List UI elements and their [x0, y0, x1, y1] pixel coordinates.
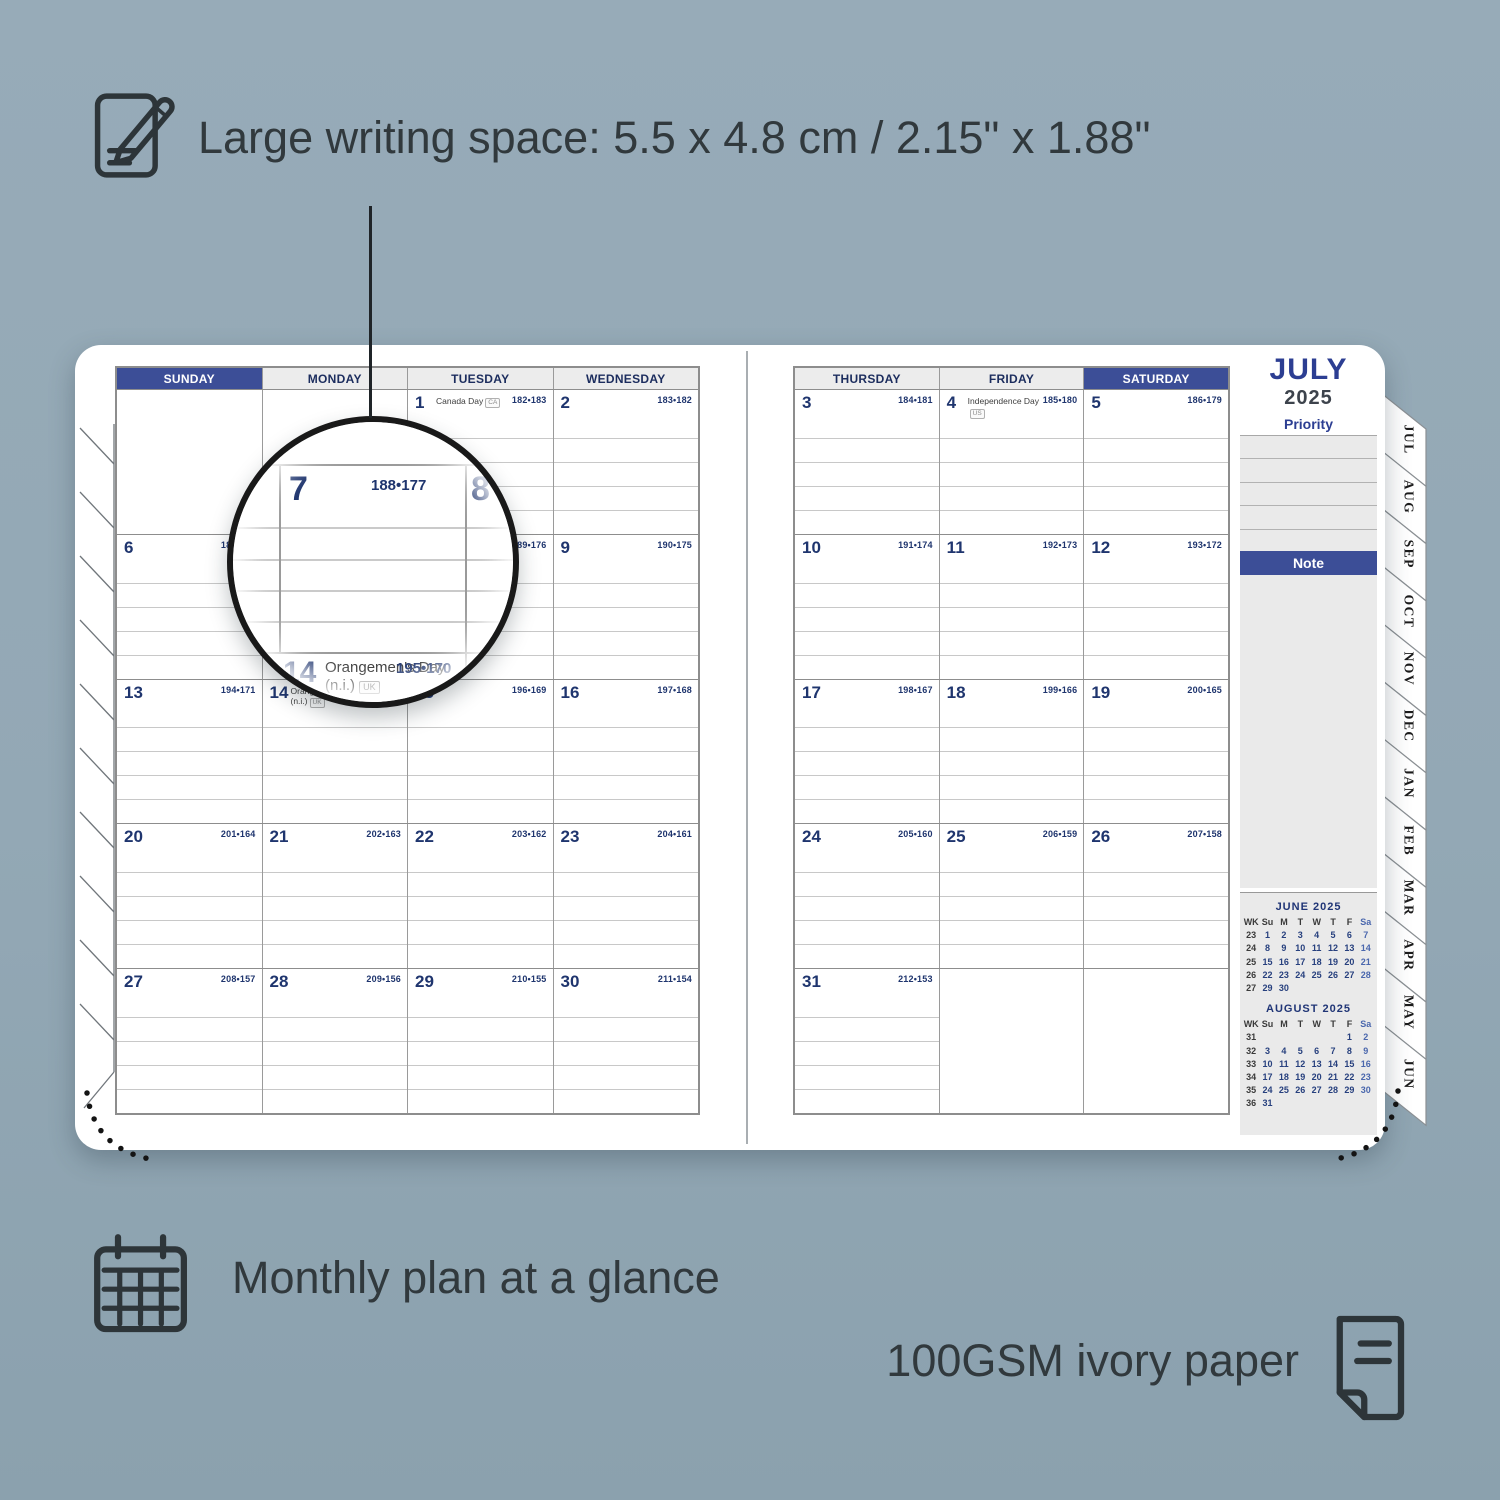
day-number: 13 [124, 683, 143, 703]
day-of-year-pair: 211•154 [658, 974, 692, 984]
mini-calendar-cell: 23 [1358, 1071, 1374, 1084]
day-of-year-pair: 201•164 [221, 829, 256, 839]
day-cell: 29210•155 [408, 969, 554, 1113]
mini-calendar-cell: 2 [1358, 1031, 1374, 1044]
mini-calendar-cell: 8 [1341, 1045, 1357, 1058]
ruled-line [940, 510, 1084, 511]
top-annotation: Large writing space: 5.5 x 4.8 cm / 2.15… [198, 112, 1150, 164]
day-cell: 31212•153 [795, 969, 940, 1113]
ruled-line [940, 486, 1084, 487]
ruled-line [1084, 896, 1228, 897]
mini-calendar-cell: 12 [1292, 1058, 1308, 1071]
month-tab-label: FEB [1402, 825, 1417, 856]
mini-calendar-cell: 24 [1292, 969, 1308, 982]
day-number: 16 [561, 683, 580, 703]
month-tab-label: JUL [1402, 425, 1417, 455]
ruled-line [1084, 510, 1228, 511]
day-number: 11 [947, 538, 965, 558]
mini-calendar-cell: 11 [1276, 1058, 1292, 1071]
ruled-line [554, 944, 699, 945]
note-area [1240, 575, 1377, 888]
ruled-line [554, 438, 699, 439]
day-cell: 27208•157 [117, 969, 263, 1113]
mini-calendar-cell: 27 [1341, 969, 1357, 982]
ruled-line [263, 1017, 408, 1018]
day-cell: 28209•156 [263, 969, 409, 1113]
day-of-year-pair: 212•153 [898, 974, 933, 984]
ruled-line [795, 1089, 939, 1090]
mini-calendar-cell [1292, 982, 1308, 995]
mini-calendar-cell: 21 [1358, 956, 1374, 969]
magnified-week-border [233, 652, 513, 654]
day-cell: 15196•169 [408, 680, 554, 824]
ruled-line [117, 631, 262, 632]
ruled-line [408, 944, 553, 945]
magnified-day-pair: 188•177 [371, 477, 426, 494]
day-cell: 18199•166 [940, 680, 1085, 824]
mini-calendar-cell: 4 [1276, 1045, 1292, 1058]
day-of-year-pair: 192•173 [1043, 540, 1078, 550]
ruled-line [263, 1065, 408, 1066]
mini-calendar-cell: 6 [1309, 1045, 1325, 1058]
ruled-line [554, 727, 699, 728]
mini-calendar-header: F [1341, 1018, 1357, 1031]
magnified-ruled-line [233, 590, 513, 592]
mini-calendar-cell: 19 [1325, 956, 1341, 969]
ruled-line [117, 799, 262, 800]
ruled-line [1084, 944, 1228, 945]
ruled-line [795, 583, 939, 584]
day-of-year-pair: 204•161 [657, 829, 692, 839]
dow-header: TUESDAY [408, 368, 554, 389]
day-cell: 12193•172 [1084, 535, 1228, 679]
ruled-line [554, 920, 699, 921]
day-number: 5 [1091, 393, 1100, 413]
day-of-year-pair: 207•158 [1187, 829, 1222, 839]
paper-sheet-icon [1322, 1312, 1410, 1424]
day-of-year-pair: 194•171 [221, 685, 256, 695]
ruled-line [554, 799, 699, 800]
ruled-line [1084, 462, 1228, 463]
day-of-year-pair: 210•155 [512, 974, 547, 984]
mini-calendar-header: M [1276, 1018, 1292, 1031]
priority-label: Priority [1240, 416, 1377, 432]
day-of-year-pair: 190•175 [657, 540, 692, 550]
day-of-week-header-row: SUNDAYMONDAYTUESDAYWEDNESDAY [117, 368, 698, 390]
ruled-line [1084, 631, 1228, 632]
day-number: 27 [124, 972, 143, 992]
day-of-year-pair: 205•160 [898, 829, 933, 839]
mini-calendar-cell: 6 [1341, 929, 1357, 942]
ruled-line [795, 510, 939, 511]
ruled-line [263, 775, 408, 776]
mini-calendar-header: F [1341, 916, 1357, 929]
day-number: 3 [802, 393, 811, 413]
mini-calendar-cell: 14 [1358, 942, 1374, 955]
ruled-line [554, 655, 699, 656]
day-number: 17 [802, 683, 821, 703]
mini-calendar-cell: 22 [1341, 1071, 1357, 1084]
ruled-line [795, 462, 939, 463]
ruled-line [940, 607, 1084, 608]
ruled-line [940, 727, 1084, 728]
mini-calendar-cell: 16 [1358, 1058, 1374, 1071]
mini-calendar-cell [1325, 1097, 1341, 1110]
mini-calendar-cell: 14 [1325, 1058, 1341, 1071]
ruled-line [795, 799, 939, 800]
day-cell: 9190•175 [554, 535, 699, 679]
mini-calendar-cell: 9 [1276, 942, 1292, 955]
mini-calendar-cell: 11 [1309, 942, 1325, 955]
ruled-line [795, 1017, 939, 1018]
day-cell [940, 969, 1085, 1113]
ruled-line [795, 775, 939, 776]
mini-calendar: AUGUST 2025WKSuMTWTFSa311232345678933101… [1240, 1003, 1377, 1110]
ruled-line [408, 920, 553, 921]
week-row: 31212•153 [795, 969, 1228, 1113]
magnified-day-number: 8 [471, 470, 490, 509]
day-number: 9 [561, 538, 570, 558]
ruled-line [554, 510, 699, 511]
holiday-note-text: (n.i.) [325, 677, 355, 694]
mini-calendar-cell: 8 [1259, 942, 1275, 955]
page-edge-line [80, 492, 114, 528]
ruled-line [408, 1017, 553, 1018]
ruled-line [263, 920, 408, 921]
ruled-line [940, 631, 1084, 632]
mini-calendar-cell [1276, 1097, 1292, 1110]
day-number: 18 [947, 683, 966, 703]
page-edge-line [80, 748, 114, 784]
mini-calendar-cell: 33 [1243, 1058, 1259, 1071]
ruled-line [263, 799, 408, 800]
magnified-holiday-note: (n.i.) UK [325, 677, 380, 694]
dow-header: FRIDAY [940, 368, 1085, 389]
mini-calendar-cell: 12 [1325, 942, 1341, 955]
day-cell: 22203•162 [408, 824, 554, 968]
mini-calendar-cell [1341, 982, 1357, 995]
ruled-line [795, 631, 939, 632]
mini-calendar-cell [1309, 1031, 1325, 1044]
day-of-year-pair: 193•172 [1187, 540, 1222, 550]
mini-calendar-cell: 30 [1276, 982, 1292, 995]
page-edge-line [80, 1004, 114, 1040]
day-of-year-pair: 209•156 [366, 974, 401, 984]
day-number: 19 [1091, 683, 1110, 703]
ruled-line [1084, 607, 1228, 608]
day-cell: 11192•173 [940, 535, 1085, 679]
page-edge-line [80, 428, 114, 464]
day-of-year-pair: 197•168 [657, 685, 692, 695]
ruled-line [117, 920, 262, 921]
ruled-line [117, 896, 262, 897]
ruled-line [117, 1089, 262, 1090]
mini-calendar-cell: 5 [1325, 929, 1341, 942]
ruled-line [554, 751, 699, 752]
mini-calendar-cell: 31 [1243, 1031, 1259, 1044]
day-cell: 24205•160 [795, 824, 940, 968]
ruled-line [1084, 655, 1228, 656]
dow-header: MONDAY [263, 368, 409, 389]
ruled-line [940, 655, 1084, 656]
day-number: 25 [947, 827, 966, 847]
mini-calendar-header: Su [1259, 1018, 1275, 1031]
day-cell: 3184•181 [795, 390, 940, 534]
mini-calendar-cell [1276, 1031, 1292, 1044]
day-number: 12 [1091, 538, 1110, 558]
mini-calendar-header: Su [1259, 916, 1275, 929]
ruled-line [117, 872, 262, 873]
mini-calendar-cell: 16 [1276, 956, 1292, 969]
ruled-line [408, 727, 553, 728]
week-row: 10191•17411192•17312193•172 [795, 535, 1228, 680]
magnified-ruled-line [233, 621, 513, 623]
mini-calendar-cell: 17 [1259, 1071, 1275, 1084]
priority-line [1240, 530, 1377, 553]
mini-calendar-cell: 34 [1243, 1071, 1259, 1084]
mini-calendar-cell: 35 [1243, 1084, 1259, 1097]
magnified-pair-fragment: 78 [235, 477, 252, 494]
mini-calendar-header: WK [1243, 1018, 1259, 1031]
ruled-line [117, 775, 262, 776]
ruled-line [940, 775, 1084, 776]
mini-calendar-cell: 7 [1325, 1045, 1341, 1058]
year-title: 2025 [1240, 387, 1377, 410]
week-row: 24205•16025206•15926207•158 [795, 824, 1228, 969]
priority-line [1240, 459, 1377, 482]
magnifier-pointer-line [369, 206, 372, 418]
ruled-line [408, 799, 553, 800]
day-number: 29 [415, 972, 434, 992]
mini-calendar-cell [1292, 1097, 1308, 1110]
mini-calendar-cell: 21 [1325, 1071, 1341, 1084]
ruled-line [795, 727, 939, 728]
mini-calendars: JUNE 2025WKSuMTWTFSa23123456724891011121… [1240, 892, 1377, 1135]
ruled-line [408, 1065, 553, 1066]
page-edge-line [80, 684, 114, 720]
day-cell: 30211•154 [554, 969, 699, 1113]
holiday-label: Independence DayUS [968, 396, 1054, 419]
mini-calendar-title: JUNE 2025 [1240, 901, 1377, 913]
bottom-left-annotation: Monthly plan at a glance [232, 1252, 720, 1304]
ruled-line [1084, 486, 1228, 487]
dow-header: WEDNESDAY [554, 368, 699, 389]
day-cell: 4185•180Independence DayUS [940, 390, 1085, 534]
mini-calendar-cell: 22 [1259, 969, 1275, 982]
spine-divider [746, 351, 748, 1144]
mini-calendar-cell: 18 [1309, 956, 1325, 969]
page-edge-hatching [78, 420, 120, 1115]
ruled-line [940, 799, 1084, 800]
day-number: 22 [415, 827, 434, 847]
day-number: 21 [270, 827, 289, 847]
day-cell: 17198•167 [795, 680, 940, 824]
mini-calendar-header: Sa [1358, 1018, 1374, 1031]
mini-calendar-cell: 27 [1243, 982, 1259, 995]
mini-calendar-cell: 15 [1259, 956, 1275, 969]
mini-calendar-cell [1358, 982, 1374, 995]
day-number: 31 [802, 972, 821, 992]
day-cell: 2183•182 [554, 390, 699, 534]
mini-calendar-cell: 20 [1309, 1071, 1325, 1084]
magnifier-circle: 78 7 188•177 8 14 Orangemen's Day (n.i.)… [227, 416, 519, 708]
ruled-line [1084, 872, 1228, 873]
mini-calendar-cell: 3 [1292, 929, 1308, 942]
day-of-year-pair: 186•179 [1187, 395, 1222, 405]
ruled-line [940, 462, 1084, 463]
dow-header: THURSDAY [795, 368, 940, 389]
ruled-line [117, 751, 262, 752]
day-of-year-pair: 183•182 [657, 395, 692, 405]
day-number: 30 [561, 972, 580, 992]
day-cell: 23204•161 [554, 824, 699, 968]
ruled-line [554, 462, 699, 463]
mini-calendar-cell: 3 [1259, 1045, 1275, 1058]
ruled-line [554, 486, 699, 487]
mini-calendar-cell: 13 [1341, 942, 1357, 955]
day-cell: 13194•171 [117, 680, 263, 824]
mini-calendar-cell: 24 [1259, 1084, 1275, 1097]
mini-calendar-cell: 28 [1325, 1084, 1341, 1097]
ruled-line [408, 1041, 553, 1042]
magnified-ruled-line [233, 527, 513, 529]
ruled-line [795, 751, 939, 752]
ruled-line [554, 775, 699, 776]
ruled-line [1084, 775, 1228, 776]
page-edge-line [80, 556, 114, 592]
day-number: 26 [1091, 827, 1110, 847]
ruled-line [263, 944, 408, 945]
mini-calendar-cell: 10 [1259, 1058, 1275, 1071]
mini-calendar-cell [1341, 1097, 1357, 1110]
day-cell: 19200•165 [1084, 680, 1228, 824]
ruled-line [117, 1017, 262, 1018]
ruled-line [940, 944, 1084, 945]
month-tab-strip: JULAUGSEPOCTNOVDECJANFEBMARAPRMAYJUN [1380, 385, 1432, 1150]
ruled-line [940, 438, 1084, 439]
month-tab-label: MAY [1402, 995, 1417, 1031]
magnified-day-number: 14 [283, 656, 316, 690]
ruled-line [554, 607, 699, 608]
mini-calendar-cell: 26 [1243, 969, 1259, 982]
page-edge-line [80, 812, 114, 848]
mini-calendar-header: T [1292, 1018, 1308, 1031]
ruled-line [408, 775, 553, 776]
day-of-year-pair: 196•169 [512, 685, 547, 695]
priority-line [1240, 436, 1377, 459]
mini-calendar-header: WK [1243, 916, 1259, 929]
magnified-ruled-line [233, 559, 513, 561]
ruled-line [940, 583, 1084, 584]
page-edge-line [84, 1072, 114, 1108]
day-cell: 26207•158 [1084, 824, 1228, 968]
magnified-day-number: 7 [289, 470, 308, 509]
mini-calendar-cell [1309, 1097, 1325, 1110]
month-title: JULY [1240, 353, 1377, 387]
day-of-year-pair: 200•165 [1187, 685, 1222, 695]
day-cell: 10191•174 [795, 535, 940, 679]
note-header: Note [1240, 551, 1377, 575]
ruled-line [263, 1089, 408, 1090]
ruled-line [1084, 438, 1228, 439]
ruled-line [554, 1089, 699, 1090]
ruled-line [554, 1065, 699, 1066]
mini-calendar-cell: 10 [1292, 942, 1308, 955]
mini-calendar-cell [1292, 1031, 1308, 1044]
ruled-line [408, 872, 553, 873]
mini-calendar-cell: 26 [1325, 969, 1341, 982]
mini-calendar-cell: 30 [1358, 1084, 1374, 1097]
ruled-line [554, 631, 699, 632]
month-tab-label: NOV [1402, 652, 1417, 687]
mini-calendar-cell: 4 [1309, 929, 1325, 942]
ruled-line [117, 1065, 262, 1066]
day-cell [1084, 969, 1228, 1113]
page-edge-line [80, 940, 114, 976]
month-tab-label: JUN [1402, 1059, 1417, 1090]
mini-calendar-cell: 5 [1292, 1045, 1308, 1058]
mini-calendar-cell: 9 [1358, 1045, 1374, 1058]
month-tab-label: JAN [1402, 768, 1417, 799]
dow-header: SATURDAY [1084, 368, 1228, 389]
mini-calendar-cell: 27 [1309, 1084, 1325, 1097]
ruled-line [554, 896, 699, 897]
country-badge: US [970, 409, 985, 419]
mini-calendar-cell: 7 [1358, 929, 1374, 942]
ruled-line [1084, 583, 1228, 584]
country-badge: UK [310, 698, 325, 708]
ruled-line [795, 920, 939, 921]
page-edge-line [80, 620, 114, 656]
mini-calendar-cell [1259, 1031, 1275, 1044]
ruled-line [940, 920, 1084, 921]
mini-calendar-header: T [1325, 1018, 1341, 1031]
day-of-year-pair: 203•162 [512, 829, 547, 839]
day-cell: 16197•168 [554, 680, 699, 824]
mini-calendar-cell: 15 [1341, 1058, 1357, 1071]
bottom-right-annotation: 100GSM ivory paper [886, 1335, 1299, 1387]
mini-calendar-cell: 17 [1292, 956, 1308, 969]
mini-calendar-cell: 25 [1276, 1084, 1292, 1097]
page-edge-line [80, 876, 114, 912]
day-number: 1 [415, 393, 424, 413]
ruled-line [263, 751, 408, 752]
month-tab-label: APR [1402, 939, 1417, 971]
month-tab-label: SEP [1402, 540, 1417, 569]
magnified-day-pair: 195•170 [396, 660, 451, 677]
week-row: 20201•16421202•16322203•16223204•161 [117, 824, 698, 969]
ruled-line [554, 872, 699, 873]
mini-calendar-cell: 23 [1243, 929, 1259, 942]
dow-header: SUNDAY [117, 368, 263, 389]
product-image: Large writing space: 5.5 x 4.8 cm / 2.15… [0, 0, 1500, 1500]
ruled-line [1084, 727, 1228, 728]
week-row: 3184•1814185•180Independence DayUS5186•1… [795, 390, 1228, 535]
week-row: 27208•15728209•15629210•15530211•154 [117, 969, 698, 1113]
mini-calendar-cell [1309, 982, 1325, 995]
country-badge: UK [359, 681, 380, 694]
ruled-line [117, 655, 262, 656]
ruled-line [554, 1017, 699, 1018]
day-number: 23 [561, 827, 580, 847]
ruled-line [117, 1041, 262, 1042]
day-number: 6 [124, 538, 133, 558]
ruled-line [795, 655, 939, 656]
day-of-year-pair: 184•181 [898, 395, 933, 405]
mini-calendar-title: AUGUST 2025 [1240, 1003, 1377, 1015]
mini-calendar-cell: 36 [1243, 1097, 1259, 1110]
ruled-line [408, 751, 553, 752]
